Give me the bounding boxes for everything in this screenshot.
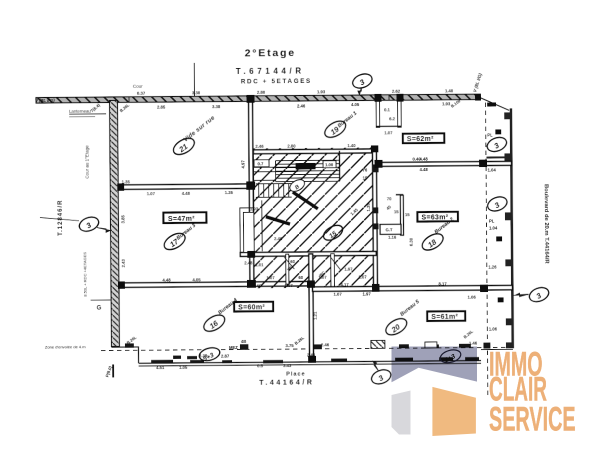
svg-text:1.21: 1.21 [313, 311, 318, 320]
svg-text:0.1: 0.1 [384, 107, 391, 112]
svg-text:Boulevard de 20.m T.44164/R: Boulevard de 20.m T.44164/R [543, 184, 550, 264]
svg-text:1.35: 1.35 [366, 203, 371, 212]
svg-text:4.97: 4.97 [240, 160, 245, 169]
svg-text:3.30: 3.30 [192, 90, 201, 95]
svg-text:2.46: 2.46 [297, 103, 306, 108]
svg-text:4.05: 4.05 [351, 102, 360, 107]
svg-text:1.07: 1.07 [334, 292, 343, 297]
svg-text:1.26: 1.26 [488, 264, 497, 269]
svg-text:60: 60 [298, 275, 303, 280]
svg-text:3.85: 3.85 [120, 215, 125, 224]
svg-text:S=60m²: S=60m² [238, 304, 265, 311]
svg-text:1.35: 1.35 [225, 190, 234, 195]
svg-text:1.07: 1.07 [284, 283, 293, 288]
svg-text:3.38: 3.38 [199, 353, 208, 358]
svg-text:1.06: 1.06 [468, 295, 477, 300]
svg-text:2.46: 2.46 [255, 144, 264, 149]
svg-text:PL: PL [489, 218, 495, 223]
svg-text:3.38: 3.38 [212, 104, 221, 109]
svg-text:RDC + 5ETAGES: RDC + 5ETAGES [241, 78, 312, 86]
svg-text:8.50L + RDC +4ETAGES: 8.50L + RDC +4ETAGES [82, 252, 87, 297]
svg-text:1.97: 1.97 [363, 291, 372, 296]
svg-text:1.07: 1.07 [358, 274, 367, 279]
svg-text:Cour: Cour [133, 84, 143, 89]
svg-text:1.46: 1.46 [469, 341, 478, 346]
svg-text:6.30: 6.30 [409, 237, 414, 246]
svg-text:S=61m²: S=61m² [431, 314, 458, 321]
svg-text:2.46: 2.46 [321, 342, 330, 347]
svg-text:Place: Place [286, 371, 305, 377]
svg-text:4.51: 4.51 [156, 365, 165, 370]
svg-text:2.80: 2.80 [257, 90, 266, 95]
svg-text:S=63m²: S=63m² [421, 215, 448, 222]
svg-text:6.2: 6.2 [389, 116, 396, 121]
svg-text:4.48: 4.48 [182, 191, 191, 196]
svg-text:1.16: 1.16 [388, 235, 397, 240]
svg-text:Lanterneau: Lanterneau [69, 108, 91, 113]
svg-text:1.07: 1.07 [147, 191, 156, 196]
svg-text:1.06: 1.06 [489, 326, 498, 331]
svg-text:1.40: 1.40 [445, 88, 454, 93]
svg-text:4.48: 4.48 [420, 167, 429, 172]
svg-text:T.67144/R: T.67144/R [236, 66, 305, 76]
svg-text:8.17: 8.17 [438, 281, 447, 286]
svg-text:4B: 4B [241, 339, 246, 344]
svg-text:0.40: 0.40 [412, 157, 421, 162]
svg-text:1.40: 1.40 [347, 143, 356, 148]
svg-text:60: 60 [290, 259, 295, 264]
svg-text:15: 15 [405, 212, 410, 217]
svg-text:1.04: 1.04 [489, 225, 498, 230]
svg-text:S=62m²: S=62m² [407, 136, 434, 143]
svg-text:1.93: 1.93 [317, 89, 326, 94]
svg-text:4C: 4C [256, 283, 261, 288]
svg-text:2.87: 2.87 [221, 354, 230, 359]
svg-text:4.48: 4.48 [162, 278, 171, 283]
svg-text:1.01: 1.01 [255, 262, 264, 267]
svg-text:T.44164/R: T.44164/R [259, 379, 314, 386]
svg-text:2°Etage: 2°Etage [245, 47, 296, 59]
svg-text:4.48: 4.48 [419, 156, 428, 161]
svg-text:MEZ: MEZ [229, 345, 238, 350]
svg-text:4.05: 4.05 [192, 277, 201, 282]
svg-text:0.37: 0.37 [137, 91, 146, 96]
svg-text:SERVICE: SERVICE [489, 401, 576, 439]
svg-text:15: 15 [394, 209, 399, 214]
svg-text:1.93: 1.93 [442, 101, 451, 106]
svg-text:T.12846/R: T.12846/R [58, 199, 64, 235]
svg-text:1.04: 1.04 [488, 167, 497, 172]
svg-text:15: 15 [363, 175, 368, 180]
svg-text:1.07: 1.07 [384, 130, 393, 135]
svg-text:1.05: 1.05 [179, 365, 188, 370]
svg-text:PL: PL [487, 132, 493, 137]
svg-text:1.97: 1.97 [344, 267, 353, 272]
svg-text:2.43: 2.43 [121, 259, 126, 268]
svg-text:2.48: 2.48 [244, 260, 253, 265]
svg-text:Cour au 1°Etage: Cour au 1°Etage [84, 145, 89, 179]
svg-text:0.5: 0.5 [257, 363, 264, 368]
svg-text:G.T: G.T [386, 227, 393, 232]
svg-text:3.43: 3.43 [283, 363, 292, 368]
svg-text:2.46: 2.46 [274, 236, 283, 241]
svg-text:2.85: 2.85 [157, 105, 166, 110]
svg-text:1.07: 1.07 [266, 275, 275, 280]
svg-text:G: G [97, 306, 102, 312]
svg-text:S=47m²: S=47m² [168, 216, 195, 223]
svg-text:1.00: 1.00 [325, 162, 334, 167]
svg-text:0.7: 0.7 [257, 161, 264, 166]
svg-text:2.80: 2.80 [287, 144, 296, 149]
svg-text:2.62: 2.62 [392, 89, 401, 94]
svg-text:V (8L I/G): V (8L I/G) [35, 98, 55, 103]
svg-text:70: 70 [387, 196, 392, 201]
svg-text:76: 76 [363, 167, 368, 172]
svg-text:3.75: 3.75 [285, 343, 294, 348]
svg-text:Zone d'envolée de 4.m: Zone d'envolée de 4.m [45, 344, 86, 349]
svg-text:4.17: 4.17 [340, 282, 349, 287]
svg-text:1.93: 1.93 [250, 206, 259, 211]
